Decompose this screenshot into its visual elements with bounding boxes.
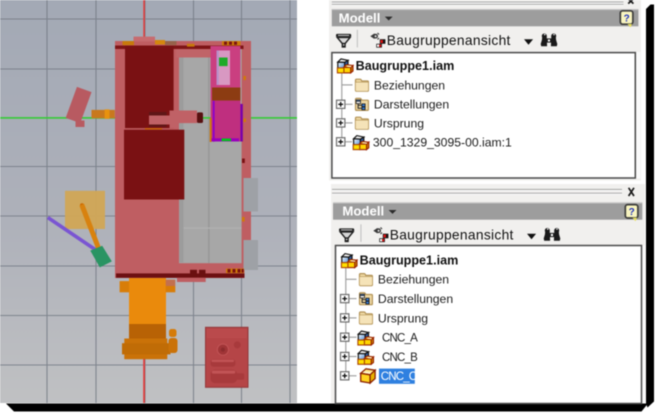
- svg-text:Baugruppe1.iam: Baugruppe1.iam: [360, 254, 459, 268]
- svg-text:Modell: Modell: [339, 10, 381, 25]
- svg-text:Baugruppe1.iam: Baugruppe1.iam: [356, 59, 455, 73]
- svg-text:300_1329_3095-00.iam:1: 300_1329_3095-00.iam:1: [373, 135, 512, 149]
- svg-text:Baugruppenansicht: Baugruppenansicht: [390, 227, 514, 242]
- svg-text:Ursprung: Ursprung: [378, 311, 428, 325]
- svg-text:Darstellungen: Darstellungen: [374, 98, 449, 112]
- svg-text:Modell: Modell: [342, 204, 384, 219]
- svg-text:CNC_A: CNC_A: [382, 333, 418, 345]
- svg-text:Beziehungen: Beziehungen: [378, 273, 449, 287]
- svg-text:?: ?: [624, 13, 630, 24]
- svg-text:Baugruppenansicht: Baugruppenansicht: [387, 33, 511, 48]
- svg-text:Ursprung: Ursprung: [374, 116, 424, 130]
- svg-text:Beziehungen: Beziehungen: [374, 78, 445, 92]
- svg-text:CNC_B: CNC_B: [382, 352, 418, 364]
- svg-text:?: ?: [629, 207, 635, 218]
- svg-text:Darstellungen: Darstellungen: [378, 292, 453, 306]
- svg-text:CNC_C: CNC_C: [381, 371, 417, 383]
